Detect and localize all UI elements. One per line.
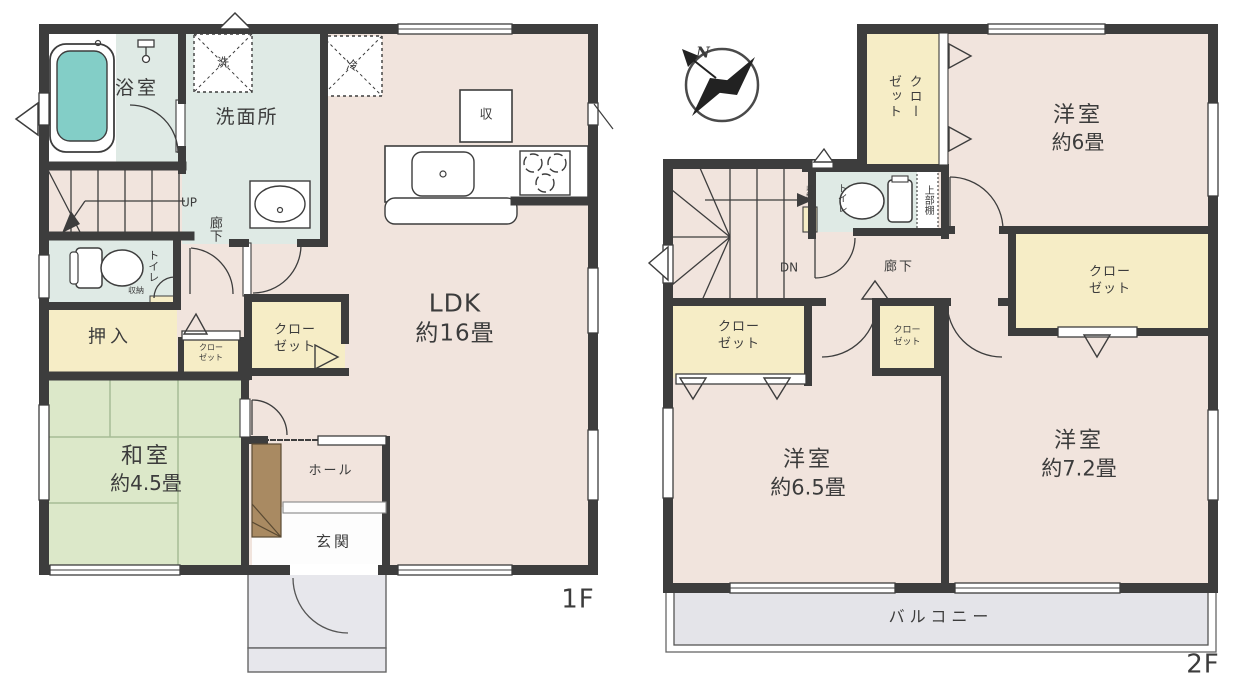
western72-name: 洋室 [1041, 427, 1116, 455]
toilet-storage-label-1f: 収納 [128, 286, 144, 296]
corridor-label-1f: 廊下 [207, 216, 221, 242]
fridge-mark-label: 冷 [346, 58, 358, 73]
balcony-label: バルコニー [889, 607, 994, 627]
closet-line2: ゼット [718, 336, 760, 353]
room-label-oshiire: 押入 [88, 325, 132, 348]
closet-line2: ゼット [1089, 281, 1131, 298]
toilet-label-1f: トイレ [147, 250, 159, 283]
room-label-bathroom: 浴室 [115, 76, 159, 100]
closet-line1: クロー [199, 343, 223, 353]
room-label-washitsu: 和室 約4.5畳 [110, 443, 182, 497]
closet-mid-label-2f: クロー ゼット [893, 325, 920, 348]
closet-line1: クロー [1089, 264, 1131, 281]
room-label-washroom: 洗面所 [215, 105, 278, 129]
toilet-storage-label-2f: 収納 [805, 185, 812, 199]
western65-name: 洋室 [770, 446, 845, 474]
closet-line1: クロー [718, 319, 760, 336]
closet-line1: クロー [274, 322, 316, 339]
compass-icon [682, 49, 758, 121]
stairs-down-label: DN [780, 260, 798, 275]
floor1-label: 1F [561, 583, 595, 616]
closet-col2: ゼット [884, 75, 901, 120]
closet-top-label-2f: クロー ゼット [884, 75, 921, 120]
closet-line1: クロー [893, 325, 920, 337]
shoe-cabinet [252, 444, 281, 537]
ldk-size: 約16畳 [415, 319, 494, 348]
compass-north-label: N [696, 43, 710, 62]
room-label-western6: 洋室 約6畳 [1052, 102, 1105, 156]
floor2-label: 2F [1186, 648, 1220, 681]
western72-size: 約7.2畳 [1041, 456, 1116, 483]
corridor-label-2f: 廊下 [884, 260, 914, 277]
room-label-ldk: LDK 約16畳 [415, 287, 494, 348]
closet-col1: クロー [905, 75, 922, 120]
floor-plan-page: { "compass": { "north_label": "N" }, "fl… [0, 0, 1257, 700]
room-label-hall: ホール [308, 464, 353, 481]
closet-line2: ゼット [274, 339, 316, 356]
kitchen-storage-label: 収 [479, 108, 492, 125]
toilet-label-2f: トイレ [835, 183, 846, 213]
closet-right-label-2f: クロー ゼット [1089, 264, 1131, 297]
entrance-porch [248, 570, 386, 672]
closet-label-1f: クロー ゼット [274, 322, 316, 355]
western6-name: 洋室 [1052, 102, 1105, 130]
washitsu-size: 約4.5畳 [110, 471, 182, 497]
entrance-step [283, 502, 386, 513]
ldk-name: LDK [415, 287, 494, 319]
washitsu-name: 和室 [110, 443, 182, 471]
washbasin-icon [250, 181, 310, 228]
closet-line2: ゼット [199, 353, 223, 363]
upper-shelf-label: 上部棚 [922, 185, 933, 215]
western6-size: 約6畳 [1052, 130, 1105, 156]
closet-left-label-2f: クロー ゼット [718, 319, 760, 352]
room-label-entrance: 玄関 [316, 532, 352, 551]
bathtub-icon [48, 33, 116, 164]
washer-mark-label: 洗 [217, 55, 229, 70]
room-label-western72: 洋室 約7.2畳 [1041, 427, 1116, 482]
room-label-western65: 洋室 約6.5畳 [770, 446, 845, 501]
closet-small-label-1f: クロー ゼット [199, 343, 223, 363]
western65-size: 約6.5畳 [770, 475, 845, 502]
stairs-up-label: UP [181, 195, 197, 210]
closet-line2: ゼット [893, 337, 920, 349]
